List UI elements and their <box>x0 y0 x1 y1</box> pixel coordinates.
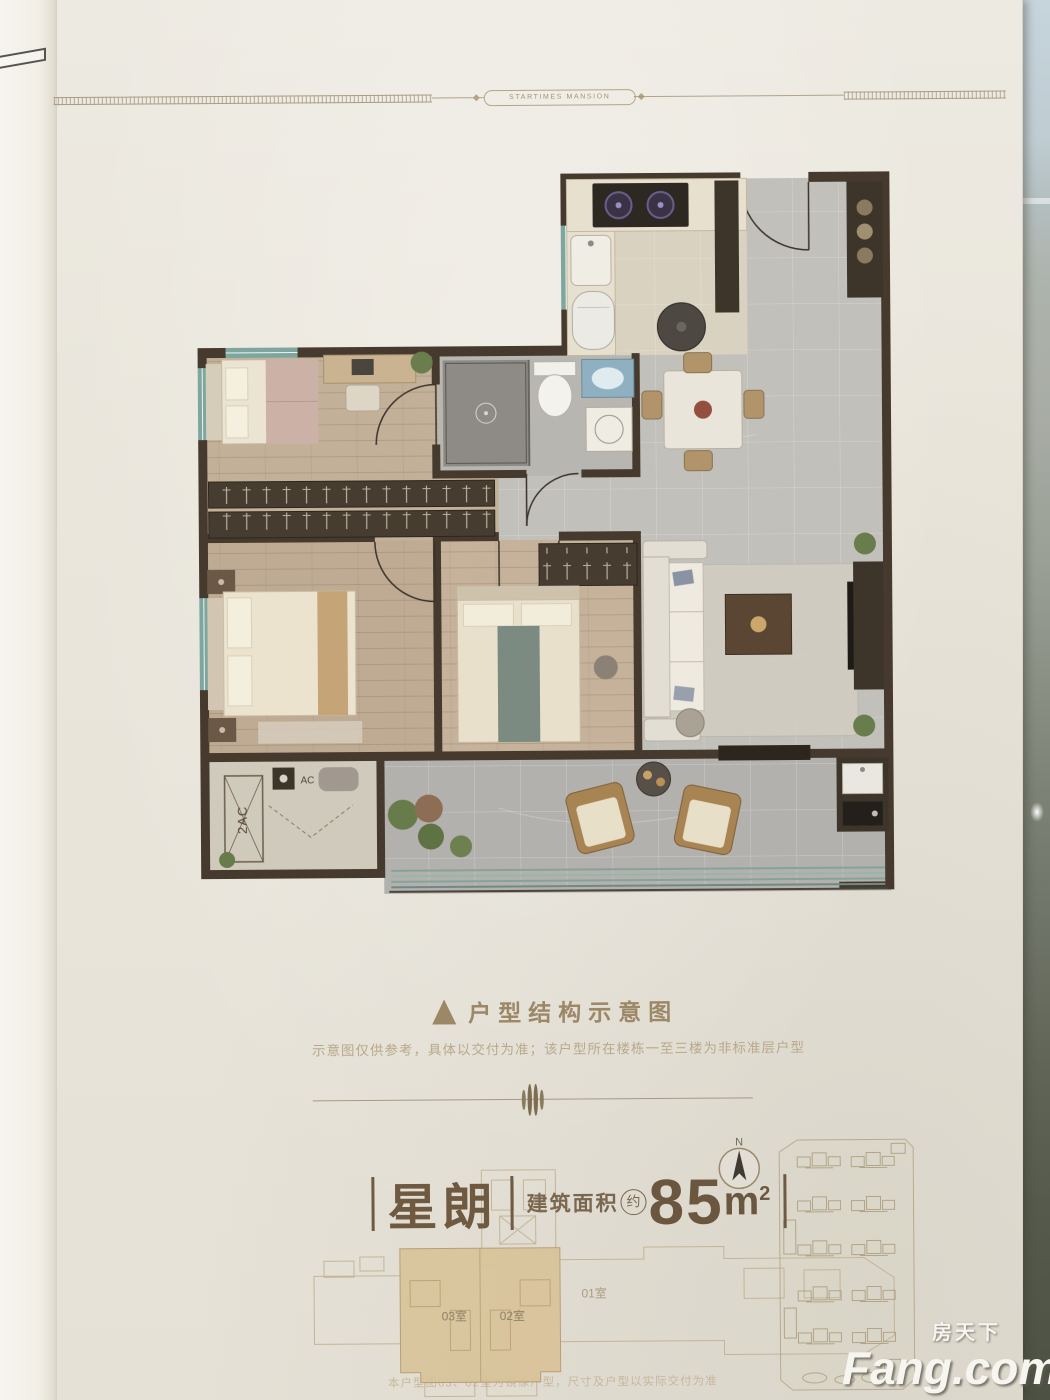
caption-title: 户型结构示意图 <box>468 993 678 1028</box>
watermark-en: Fang.com <box>842 1341 1050 1395</box>
brochure-page: STARTIMES MANSION <box>0 0 1023 1400</box>
page-content: STARTIMES MANSION <box>0 0 1027 1400</box>
peak-triangle-icon <box>432 999 456 1024</box>
divider-ornament <box>313 1076 753 1123</box>
area-exponent: 2 <box>759 1182 770 1204</box>
vertical-bar <box>371 1177 374 1231</box>
area-label: 建筑面积 <box>526 1187 618 1218</box>
ac-platform-label: 2AC <box>235 806 250 834</box>
area-unit: m2 <box>724 1179 771 1224</box>
area-group: 建筑面积 约 85 m2 <box>526 1169 770 1235</box>
approx-circle: 约 <box>620 1189 646 1215</box>
disclaimer-text: 示意图仅供参考，具体以交付为准；该户型所在楼栋一至三楼为非标准层户型 <box>228 1035 888 1060</box>
ornament-line-right <box>634 95 844 97</box>
ornament-ticks-right <box>844 91 1006 100</box>
ornament-ticks-left <box>54 95 432 106</box>
keyplan-unit-01: 01室 <box>581 1285 606 1300</box>
brand-motto: STARTIMES MANSION <box>484 89 636 106</box>
watermark: 房天下 Fang.com <box>842 1316 1050 1395</box>
vertical-bar <box>510 1176 513 1230</box>
area-value: 85 <box>648 1170 724 1235</box>
unit-title-row: 星朗 建筑面积 约 85 m2 <box>371 1164 786 1241</box>
unit-name: 星朗 <box>387 1167 497 1240</box>
ac-label: AC <box>301 775 315 786</box>
brochure-photo: STARTIMES MANSION <box>0 0 1050 1400</box>
light-glint <box>1030 802 1044 822</box>
diamond-icon <box>473 94 480 101</box>
keyplan-unit-03: 03室 <box>442 1308 467 1323</box>
leaf-lenses-icon <box>509 1078 557 1122</box>
header-ornament: STARTIMES MANSION <box>54 87 1006 110</box>
keyplan-unit-02: 02室 <box>500 1308 525 1323</box>
vertical-bar <box>783 1174 786 1228</box>
caption-row: 户型结构示意图 <box>432 993 678 1029</box>
floorplan-illustration: 2AC AC <box>194 165 894 905</box>
north-label: N <box>735 1136 743 1148</box>
